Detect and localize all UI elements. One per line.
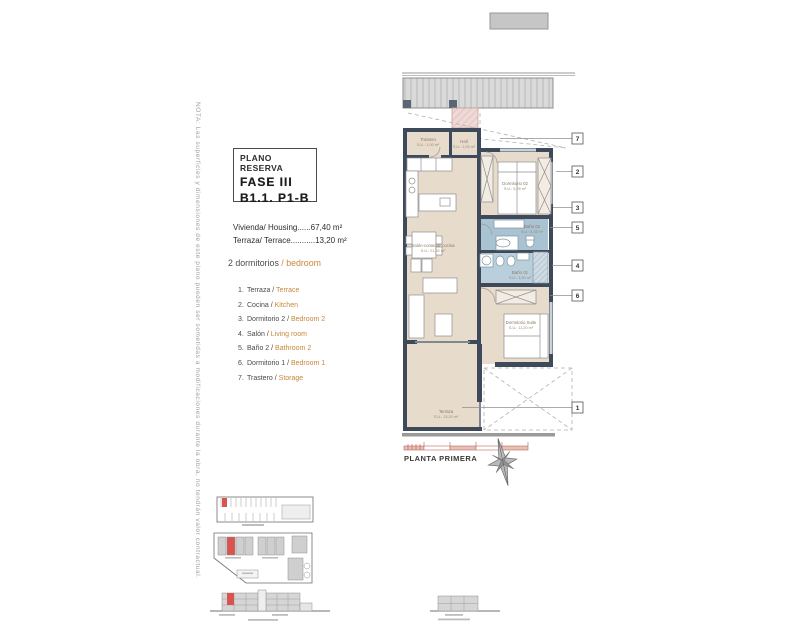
site-key-plan (214, 533, 312, 583)
callout-7: 7 (576, 136, 580, 143)
projection-lines-bottom (484, 368, 572, 430)
floor-name: PLANTA PRIMERA (404, 454, 477, 463)
label-bano2-area: S.U.: 4,35 m² (521, 230, 544, 234)
scale-bar (404, 442, 528, 450)
section-base-line (402, 433, 555, 437)
label-terraza: Terraza (439, 409, 454, 414)
floorplan-drawing: Trastero S.U.: 1,00 m² Hall S.U.: 1,05 m… (0, 0, 800, 640)
label-hall: Hall (460, 139, 467, 144)
label-terraza-area: S.U.: 13,20 m² (434, 415, 459, 419)
label-dorm2: Dormitorio 02 (502, 181, 528, 186)
callout-5: 5 (576, 225, 580, 232)
label-suite: Dormitorio Suite (506, 320, 537, 325)
upper-floor-outline (402, 13, 575, 76)
floorplan-sheet: NOTA: Las superficies y dimensiones de e… (0, 0, 800, 640)
entry-porch (452, 108, 478, 128)
elevation-key-small (430, 596, 500, 620)
callout-6: 6 (576, 293, 580, 300)
label-salon-area: S.U.: 21,92 m² (421, 249, 446, 253)
callout-4: 4 (576, 263, 580, 270)
compass-rose-icon (483, 436, 521, 489)
label-bano1-area: S.U.: 3,60 m² (509, 276, 532, 280)
callout-1: 1 (576, 405, 580, 412)
upper-walkway-band (403, 78, 553, 108)
label-suite-area: S.U.: 11,20 m² (509, 326, 534, 330)
label-hall-area: S.U.: 1,05 m² (453, 145, 476, 149)
label-bano2: Baño 02 (524, 224, 541, 229)
label-trastero: Trastero (420, 137, 436, 142)
callout-3: 3 (576, 205, 580, 212)
callout-boxes: 7 2 3 5 4 6 1 (572, 133, 583, 413)
label-salon: Salón-comedor-cocina (412, 243, 456, 248)
callout-2: 2 (576, 169, 580, 176)
label-trastero-area: S.U.: 1,00 m² (417, 143, 440, 147)
label-dorm2-area: S.U.: 9,26 m² (504, 187, 527, 191)
garage-key-plan (217, 497, 313, 526)
elevation-key-large (210, 590, 330, 621)
label-bano1: Baño 01 (512, 270, 529, 275)
